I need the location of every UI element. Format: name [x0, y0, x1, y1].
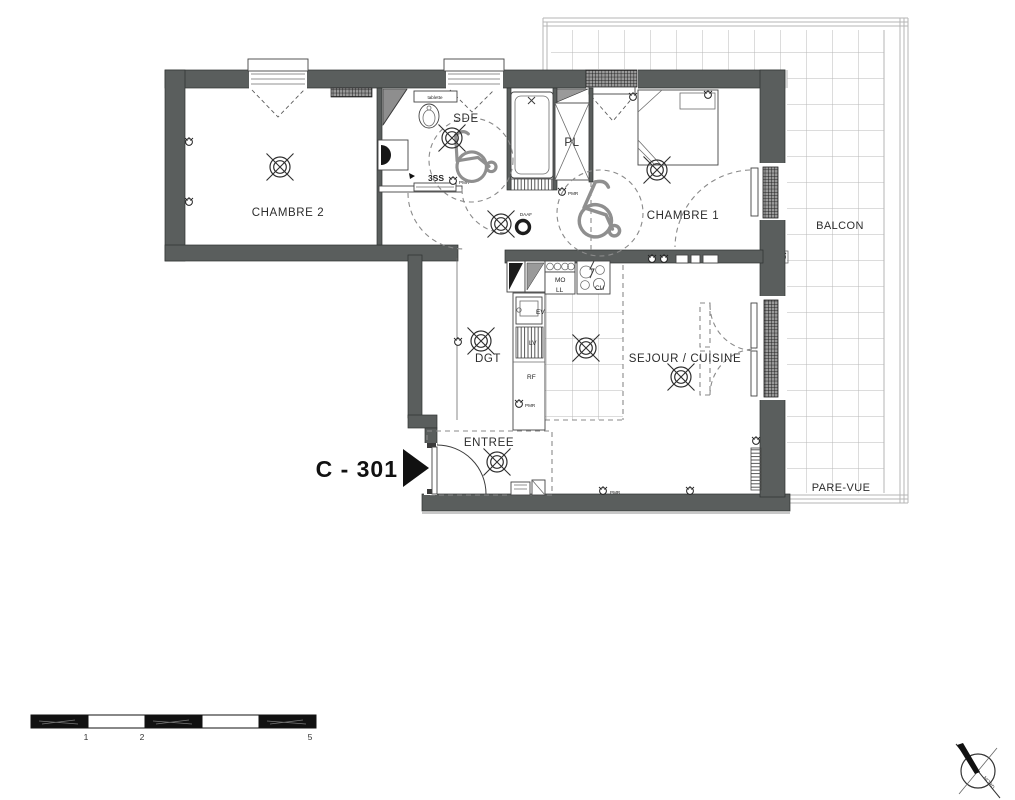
sde-label: SDE — [453, 113, 478, 125]
outlet-icon — [558, 187, 566, 195]
outlet-icon — [449, 176, 457, 184]
ceiling-light-icon — [484, 449, 511, 476]
outlet-icon — [185, 197, 193, 205]
outlet-icon — [752, 436, 760, 444]
scale-tick-5: 5 — [308, 732, 313, 742]
ceiling-light-icon — [488, 211, 515, 238]
floor-plan-drawing: BALCON PARE-VUE — [0, 0, 1015, 800]
ceiling-light-icon — [468, 328, 495, 355]
scale-tick-1: 1 — [84, 732, 89, 742]
pmr-label: PMR — [568, 191, 579, 196]
chambre2-label: CHAMBRE 2 — [252, 207, 325, 219]
roller-shutter-box — [763, 167, 778, 218]
washbasin — [419, 104, 439, 128]
outlet-icon — [454, 337, 462, 345]
sejour-cuisine-label: SEJOUR / CUISINE — [629, 353, 741, 365]
micro-ondes-label: MO — [555, 277, 565, 284]
outlet-icon — [185, 137, 193, 145]
shower-grate — [511, 179, 553, 190]
refrigerateur-label: RF — [527, 374, 536, 381]
smoke-detector-icon — [517, 221, 530, 234]
lave-vaisselle-label: LV — [529, 340, 537, 347]
ceiling-light-icon — [439, 125, 466, 152]
daaf-label: DAAF — [520, 212, 532, 217]
cabinet — [511, 482, 530, 495]
entry-door-leaf — [432, 447, 437, 494]
seche-serviettes-label: 3SS — [428, 173, 444, 183]
unit-label: C - 301 — [316, 456, 398, 482]
shower — [511, 92, 553, 178]
dgt-label: DGT — [475, 353, 501, 365]
compass-icon: NORD — [956, 743, 1000, 798]
pl-closet: PL PMR — [555, 88, 593, 252]
pmr-label: PMR — [525, 403, 536, 408]
radiator — [331, 88, 372, 97]
kitchen-floor — [545, 293, 623, 420]
french-doors-sejour — [700, 300, 778, 397]
scale-bar: 1 2 5 — [31, 715, 316, 742]
lave-linge-label: LL — [556, 287, 564, 294]
north-needle — [957, 743, 980, 774]
pare-vue-label: PARE-VUE — [812, 482, 871, 494]
entree: ENTREE — [424, 431, 552, 495]
cooktop — [577, 261, 610, 294]
sde-room: tablette 3SS PMR SDE — [377, 88, 557, 245]
window-chambre1 — [586, 70, 637, 121]
roller-shutter-box — [764, 300, 778, 397]
floor-plan-page: BALCON PARE-VUE — [0, 0, 1015, 800]
ceiling-light-icon — [267, 154, 294, 181]
roller-shutter-box — [586, 70, 637, 87]
duct — [557, 89, 588, 102]
pl-label: PL — [564, 137, 579, 149]
entree-label: ENTREE — [464, 437, 514, 449]
pmr-label: PMR — [610, 490, 621, 495]
ceiling-light-icon — [644, 157, 671, 184]
balcony-label: BALCON — [816, 220, 864, 232]
chambre1-label: CHAMBRE 1 — [647, 210, 720, 222]
sejour-cuisine: EV LV RF PMR MO LL CU SEJOUR / CUISINE P… — [507, 254, 761, 495]
unit-callout: C - 301 — [316, 449, 429, 487]
wheelchair-icon — [576, 179, 629, 242]
cuisson-label: CU — [595, 285, 605, 292]
downspout — [751, 448, 761, 490]
ceiling-light-icon — [668, 364, 695, 391]
tablette-label: tablette — [427, 95, 443, 100]
outlet-icon — [686, 486, 694, 494]
outlet-icon — [599, 486, 607, 494]
scale-tick-2: 2 — [140, 732, 145, 742]
ceiling-light-icon — [573, 335, 600, 362]
evier-label: EV — [536, 309, 545, 316]
